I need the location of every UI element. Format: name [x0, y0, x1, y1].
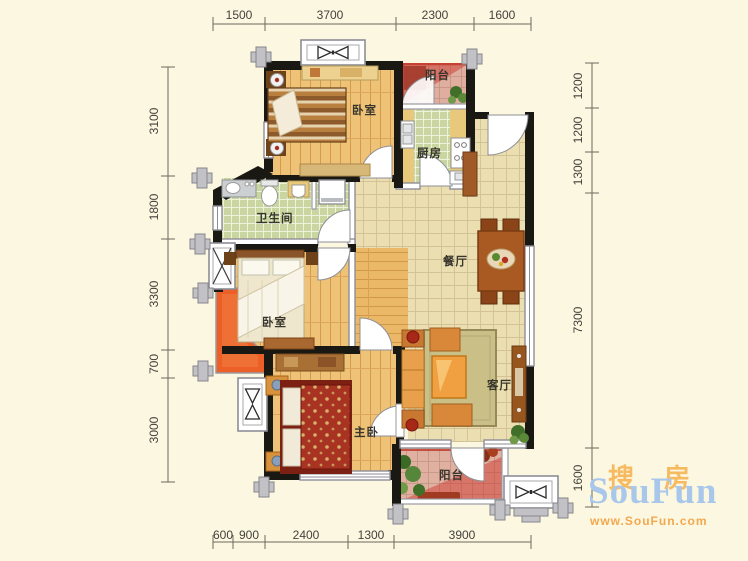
ac-platform-top [301, 40, 365, 65]
label-bedroom-second: 卧室 [262, 315, 287, 329]
label-dining: 餐厅 [442, 254, 468, 268]
dim-right-3: 1300 [571, 158, 585, 185]
dim-top-1: 1500 [226, 8, 253, 22]
armchair [432, 404, 472, 426]
ac-shaft-left-lower [238, 378, 267, 431]
pillow [283, 429, 301, 466]
floorplan-page: { "plan": { "rooms": { "bedroom_top": "卧… [0, 0, 748, 561]
washing-machine [319, 180, 345, 204]
label-living: 客厅 [486, 378, 512, 392]
shoe-cabinet [463, 152, 477, 196]
nightstand [224, 252, 236, 265]
dim-bottom-3: 2400 [293, 528, 320, 542]
bed-bench [264, 338, 314, 349]
kitchen-sink [401, 121, 414, 148]
chair [503, 290, 519, 304]
dimension-chain-bottom: 600 900 2400 1300 3900 [213, 528, 531, 549]
dim-top-4: 1600 [489, 8, 516, 22]
corridor-left-wall [349, 176, 355, 348]
dim-left-4: 700 [147, 354, 161, 374]
chair [481, 290, 497, 304]
dim-bottom-4: 1300 [358, 528, 385, 542]
dim-right-4: 7300 [571, 306, 585, 333]
balcony-bottom-outer-wall [396, 499, 508, 504]
bed [301, 385, 350, 469]
ac-shaft-left-upper [209, 243, 235, 289]
dim-right-2: 1200 [571, 116, 585, 143]
logo-name: SouFun [588, 470, 717, 513]
dining-set [478, 219, 524, 304]
bedroom-second-furniture [224, 250, 318, 349]
dim-left-3: 3300 [147, 280, 161, 307]
dim-right-1: 1200 [571, 72, 585, 99]
dim-top-2: 3700 [317, 8, 344, 22]
dim-left-1: 3100 [147, 107, 161, 134]
label-master-bedroom: 主卧 [354, 425, 379, 439]
dim-left-5: 3000 [147, 416, 161, 443]
nightstand [306, 252, 318, 265]
headboard [236, 250, 304, 258]
toilet [261, 180, 278, 206]
kitchen-balcony-divider [400, 104, 472, 109]
bathroom-partition [312, 179, 316, 209]
window-living-balcony-left [400, 440, 451, 448]
dim-left-2: 1800 [147, 193, 161, 220]
dim-bottom-5: 3900 [449, 528, 476, 542]
pillow [242, 260, 269, 275]
logo-url: www.SouFun.com [590, 514, 708, 528]
dim-bottom-2: 900 [239, 528, 259, 542]
label-balcony-top: 阳台 [425, 68, 450, 82]
dimension-chain-top: 1500 3700 2300 1600 [213, 8, 531, 31]
dimension-chain-left: 3100 1800 3300 700 3000 [147, 67, 175, 482]
window-bathroom-left [213, 206, 222, 230]
window-living-balcony-right [484, 440, 526, 448]
dim-top-3: 2300 [422, 8, 449, 22]
sofa [402, 350, 424, 408]
label-kitchen: 厨房 [417, 146, 442, 160]
dim-bottom-1: 600 [213, 528, 233, 542]
basin [288, 181, 309, 197]
soufun-watermark: 搜 房 SouFun www.SouFun.com [580, 440, 748, 558]
ac-platform-bottom-right [504, 476, 558, 522]
armchair [430, 328, 460, 351]
label-bathroom: 卫生间 [256, 211, 294, 225]
pillow [283, 388, 301, 425]
label-balcony-bottom: 阳台 [439, 468, 464, 482]
label-bedroom-top: 卧室 [352, 103, 377, 117]
